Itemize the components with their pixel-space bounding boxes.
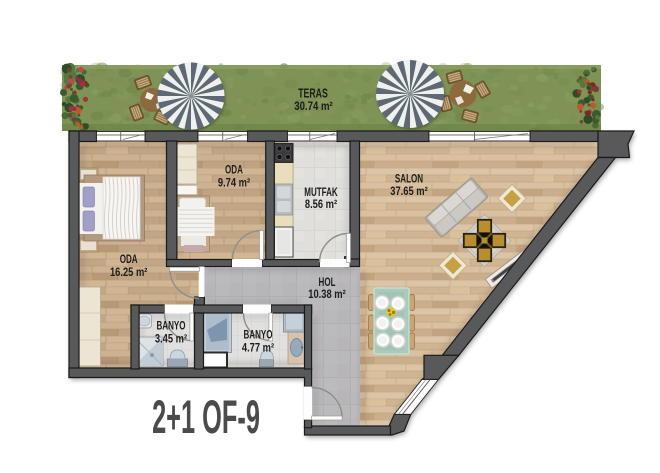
svg-text:BANYO: BANYO xyxy=(243,329,272,342)
svg-text:4.77 m²: 4.77 m² xyxy=(242,341,275,354)
svg-text:3.45 m²: 3.45 m² xyxy=(155,332,188,345)
svg-text:BANYO: BANYO xyxy=(156,320,185,333)
svg-text:8.56 m²: 8.56 m² xyxy=(305,198,338,211)
svg-text:TERAS: TERAS xyxy=(298,87,328,101)
svg-text:2+1 OF-9: 2+1 OF-9 xyxy=(152,392,260,444)
svg-text:30.74 m²: 30.74 m² xyxy=(294,100,333,113)
svg-text:ODA: ODA xyxy=(120,254,138,267)
svg-text:ODA: ODA xyxy=(225,164,243,177)
svg-text:9.74 m²: 9.74 m² xyxy=(218,176,251,189)
svg-text:37.65 m²: 37.65 m² xyxy=(390,185,428,198)
svg-text:16.25 m²: 16.25 m² xyxy=(110,266,148,279)
svg-text:10.38 m²: 10.38 m² xyxy=(308,288,346,301)
